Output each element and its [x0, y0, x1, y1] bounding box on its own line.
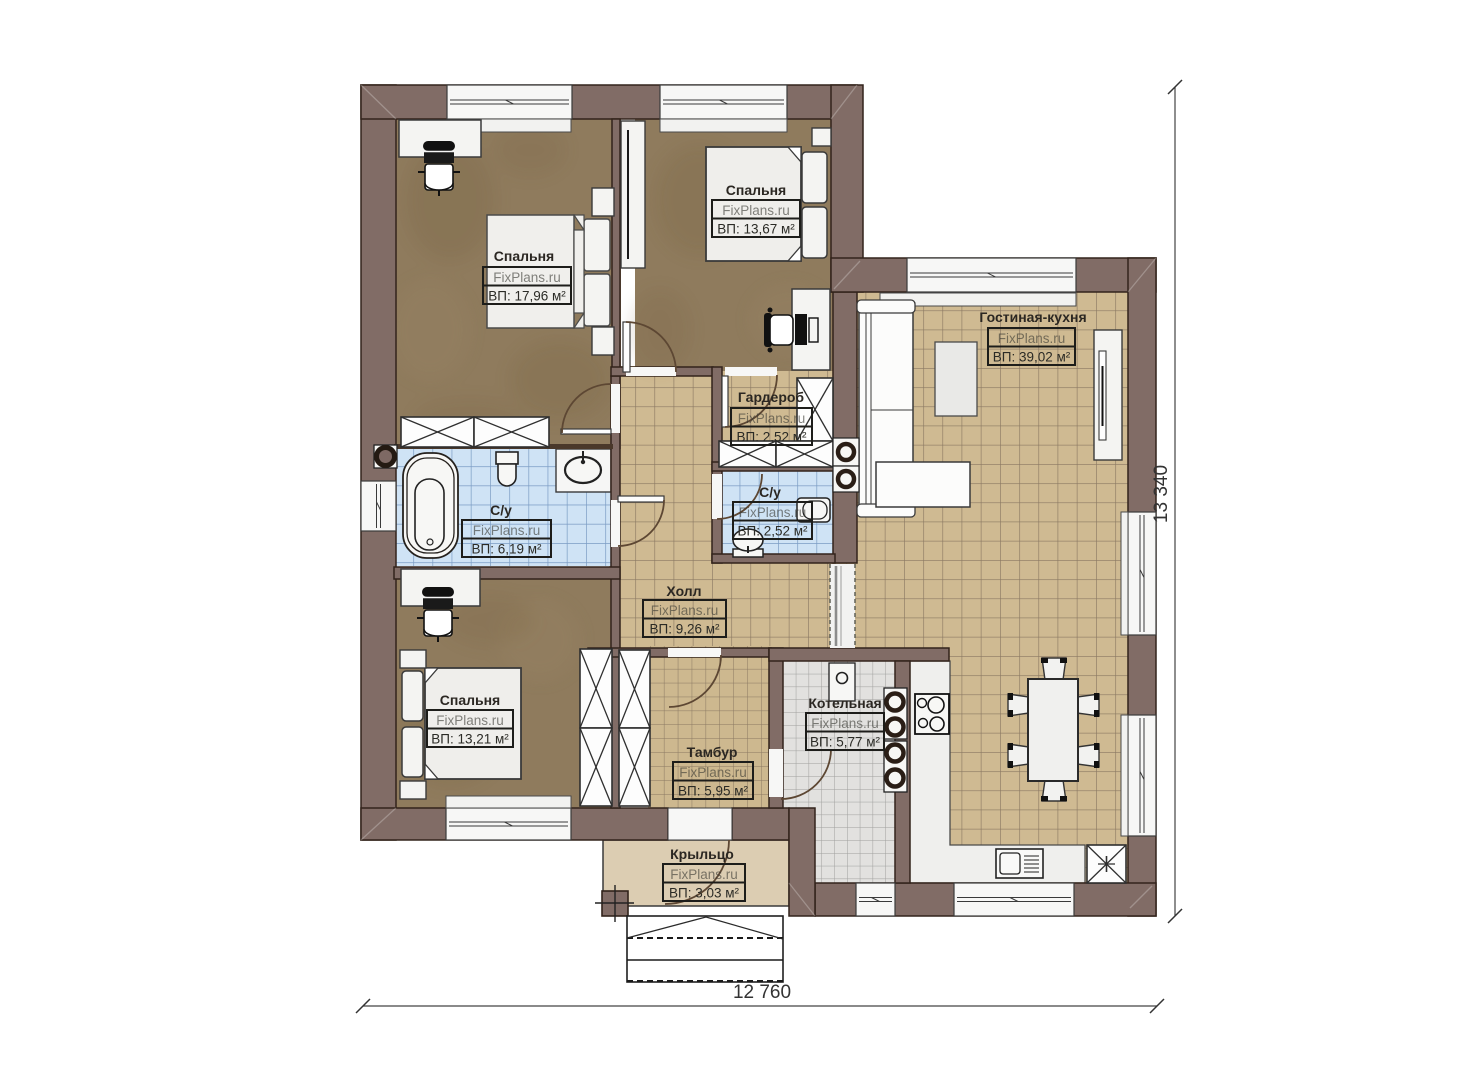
svg-text:С/у: С/у: [490, 502, 512, 518]
svg-text:FixPlans.ru: FixPlans.ru: [722, 203, 790, 218]
svg-text:ВП: 5,77 м²: ВП: 5,77 м²: [810, 734, 881, 749]
svg-text:С/у: С/у: [759, 484, 781, 500]
svg-text:ВП: 9,26 м²: ВП: 9,26 м²: [649, 621, 720, 636]
svg-text:FixPlans.ru: FixPlans.ru: [739, 505, 807, 520]
svg-text:12 760: 12 760: [733, 982, 791, 1003]
svg-text:FixPlans.ru: FixPlans.ru: [473, 523, 541, 538]
svg-text:FixPlans.ru: FixPlans.ru: [738, 411, 806, 426]
svg-text:FixPlans.ru: FixPlans.ru: [679, 765, 747, 780]
svg-text:FixPlans.ru: FixPlans.ru: [998, 331, 1066, 346]
svg-text:Котельная: Котельная: [808, 695, 881, 711]
svg-text:ВП: 3,03 м²: ВП: 3,03 м²: [669, 885, 740, 900]
svg-text:Спальня: Спальня: [440, 692, 500, 708]
svg-text:ВП: 2,52 м²: ВП: 2,52 м²: [736, 429, 807, 444]
svg-text:13 340: 13 340: [1151, 465, 1172, 523]
svg-text:Спальня: Спальня: [494, 248, 554, 264]
svg-text:ВП: 39,02 м²: ВП: 39,02 м²: [993, 349, 1071, 364]
svg-text:ВП: 17,96 м²: ВП: 17,96 м²: [488, 288, 566, 303]
svg-text:ВП: 13,21 м²: ВП: 13,21 м²: [431, 731, 509, 746]
svg-text:FixPlans.ru: FixPlans.ru: [651, 603, 719, 618]
svg-text:ВП: 13,67 м²: ВП: 13,67 м²: [717, 221, 795, 236]
svg-text:Гостиная-кухня: Гостиная-кухня: [979, 309, 1086, 325]
svg-text:Гардероб: Гардероб: [738, 389, 805, 405]
svg-text:ВП: 5,95 м²: ВП: 5,95 м²: [678, 783, 749, 798]
svg-text:FixPlans.ru: FixPlans.ru: [436, 713, 504, 728]
svg-text:ВП: 6,19 м²: ВП: 6,19 м²: [471, 541, 542, 556]
svg-text:Тамбур: Тамбур: [687, 744, 738, 760]
svg-text:Крыльцо: Крыльцо: [670, 846, 734, 862]
svg-text:Холл: Холл: [666, 583, 701, 599]
svg-text:ВП: 2,52 м²: ВП: 2,52 м²: [737, 523, 808, 538]
svg-text:FixPlans.ru: FixPlans.ru: [811, 716, 879, 731]
svg-text:Спальня: Спальня: [726, 182, 786, 198]
svg-text:FixPlans.ru: FixPlans.ru: [670, 867, 738, 882]
svg-text:FixPlans.ru: FixPlans.ru: [493, 270, 561, 285]
